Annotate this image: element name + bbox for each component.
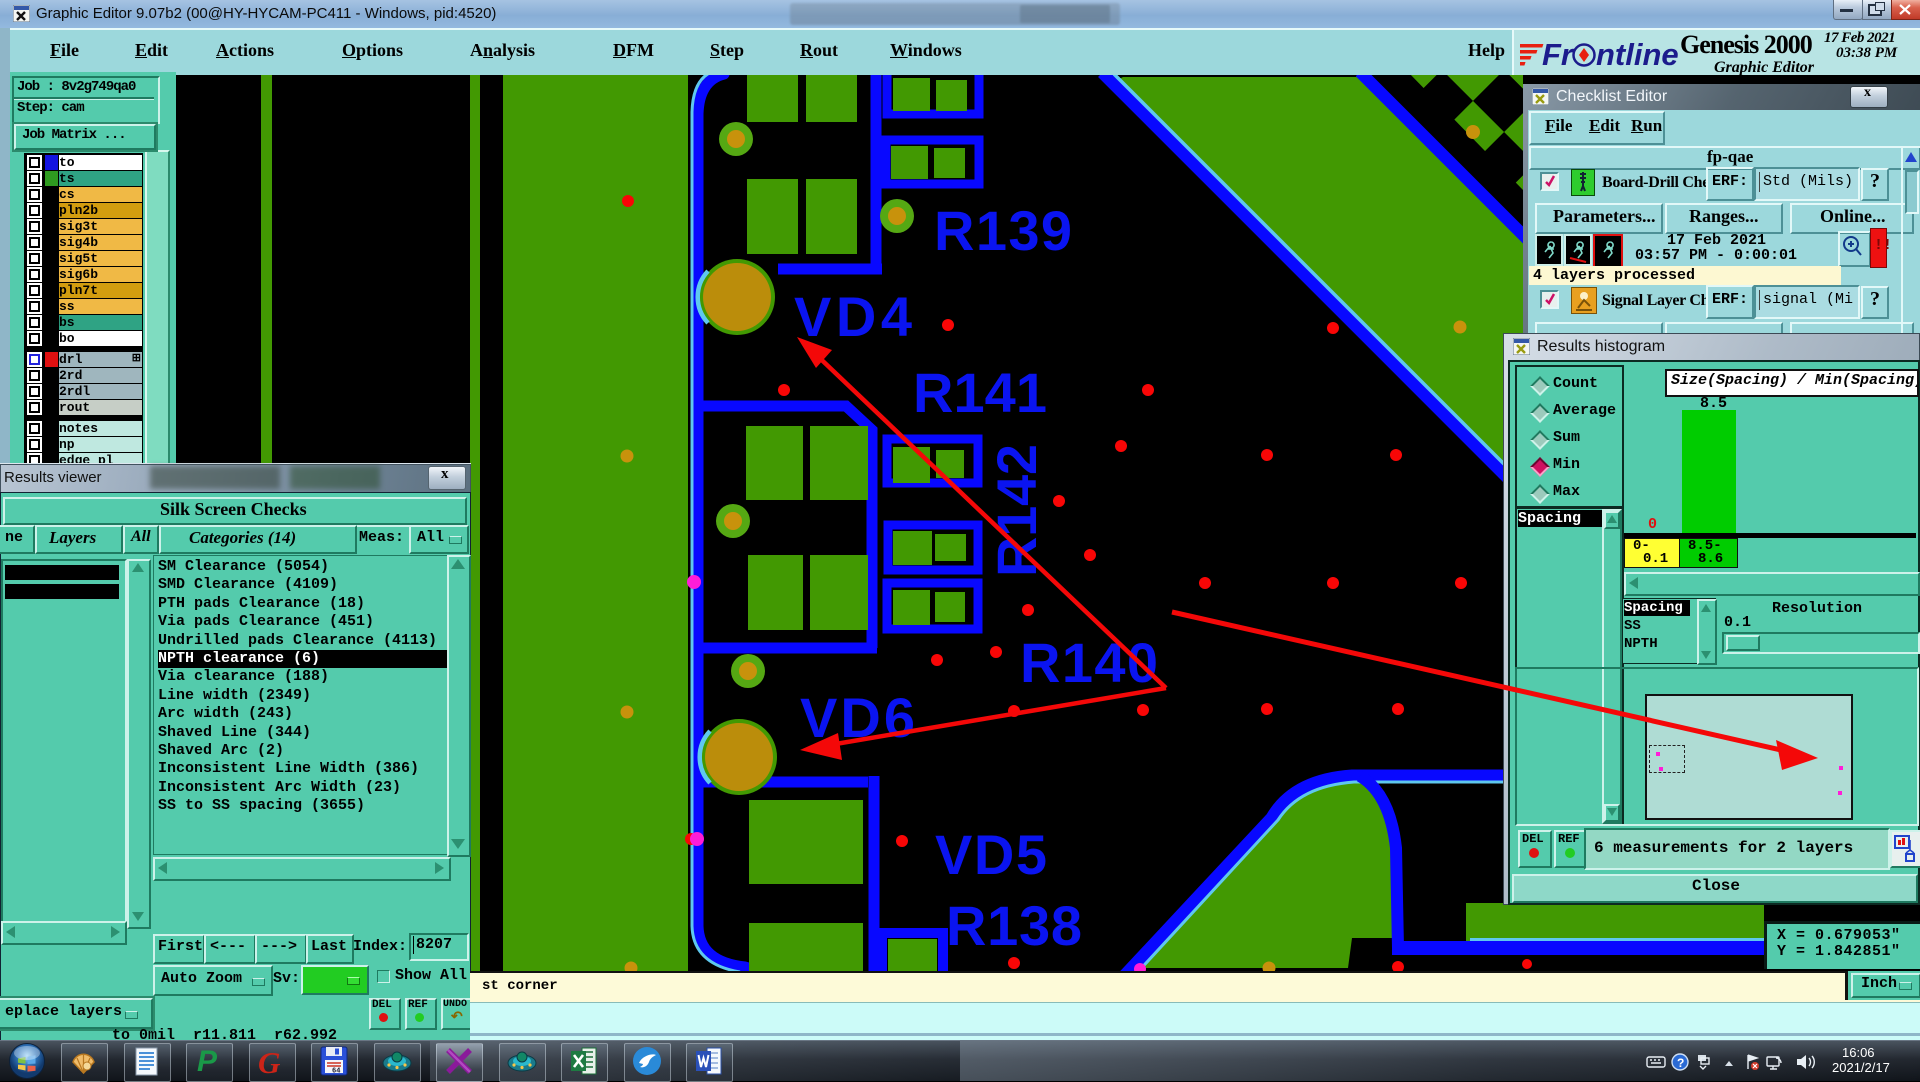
svg-text:R138: R138 [946,894,1082,957]
svg-text:64: 64 [332,1068,340,1076]
svg-text:VD5: VD5 [935,823,1047,886]
svg-text:R139: R139 [934,199,1072,262]
svg-text:R142: R142 [985,444,1048,577]
svg-text:?: ? [1677,1056,1684,1070]
svg-text:R141: R141 [913,361,1047,424]
svg-text:16:06: 16:06 [1842,1045,1875,1060]
svg-text:VD4: VD4 [794,285,912,348]
svg-text:2021/2/17: 2021/2/17 [1832,1060,1890,1075]
